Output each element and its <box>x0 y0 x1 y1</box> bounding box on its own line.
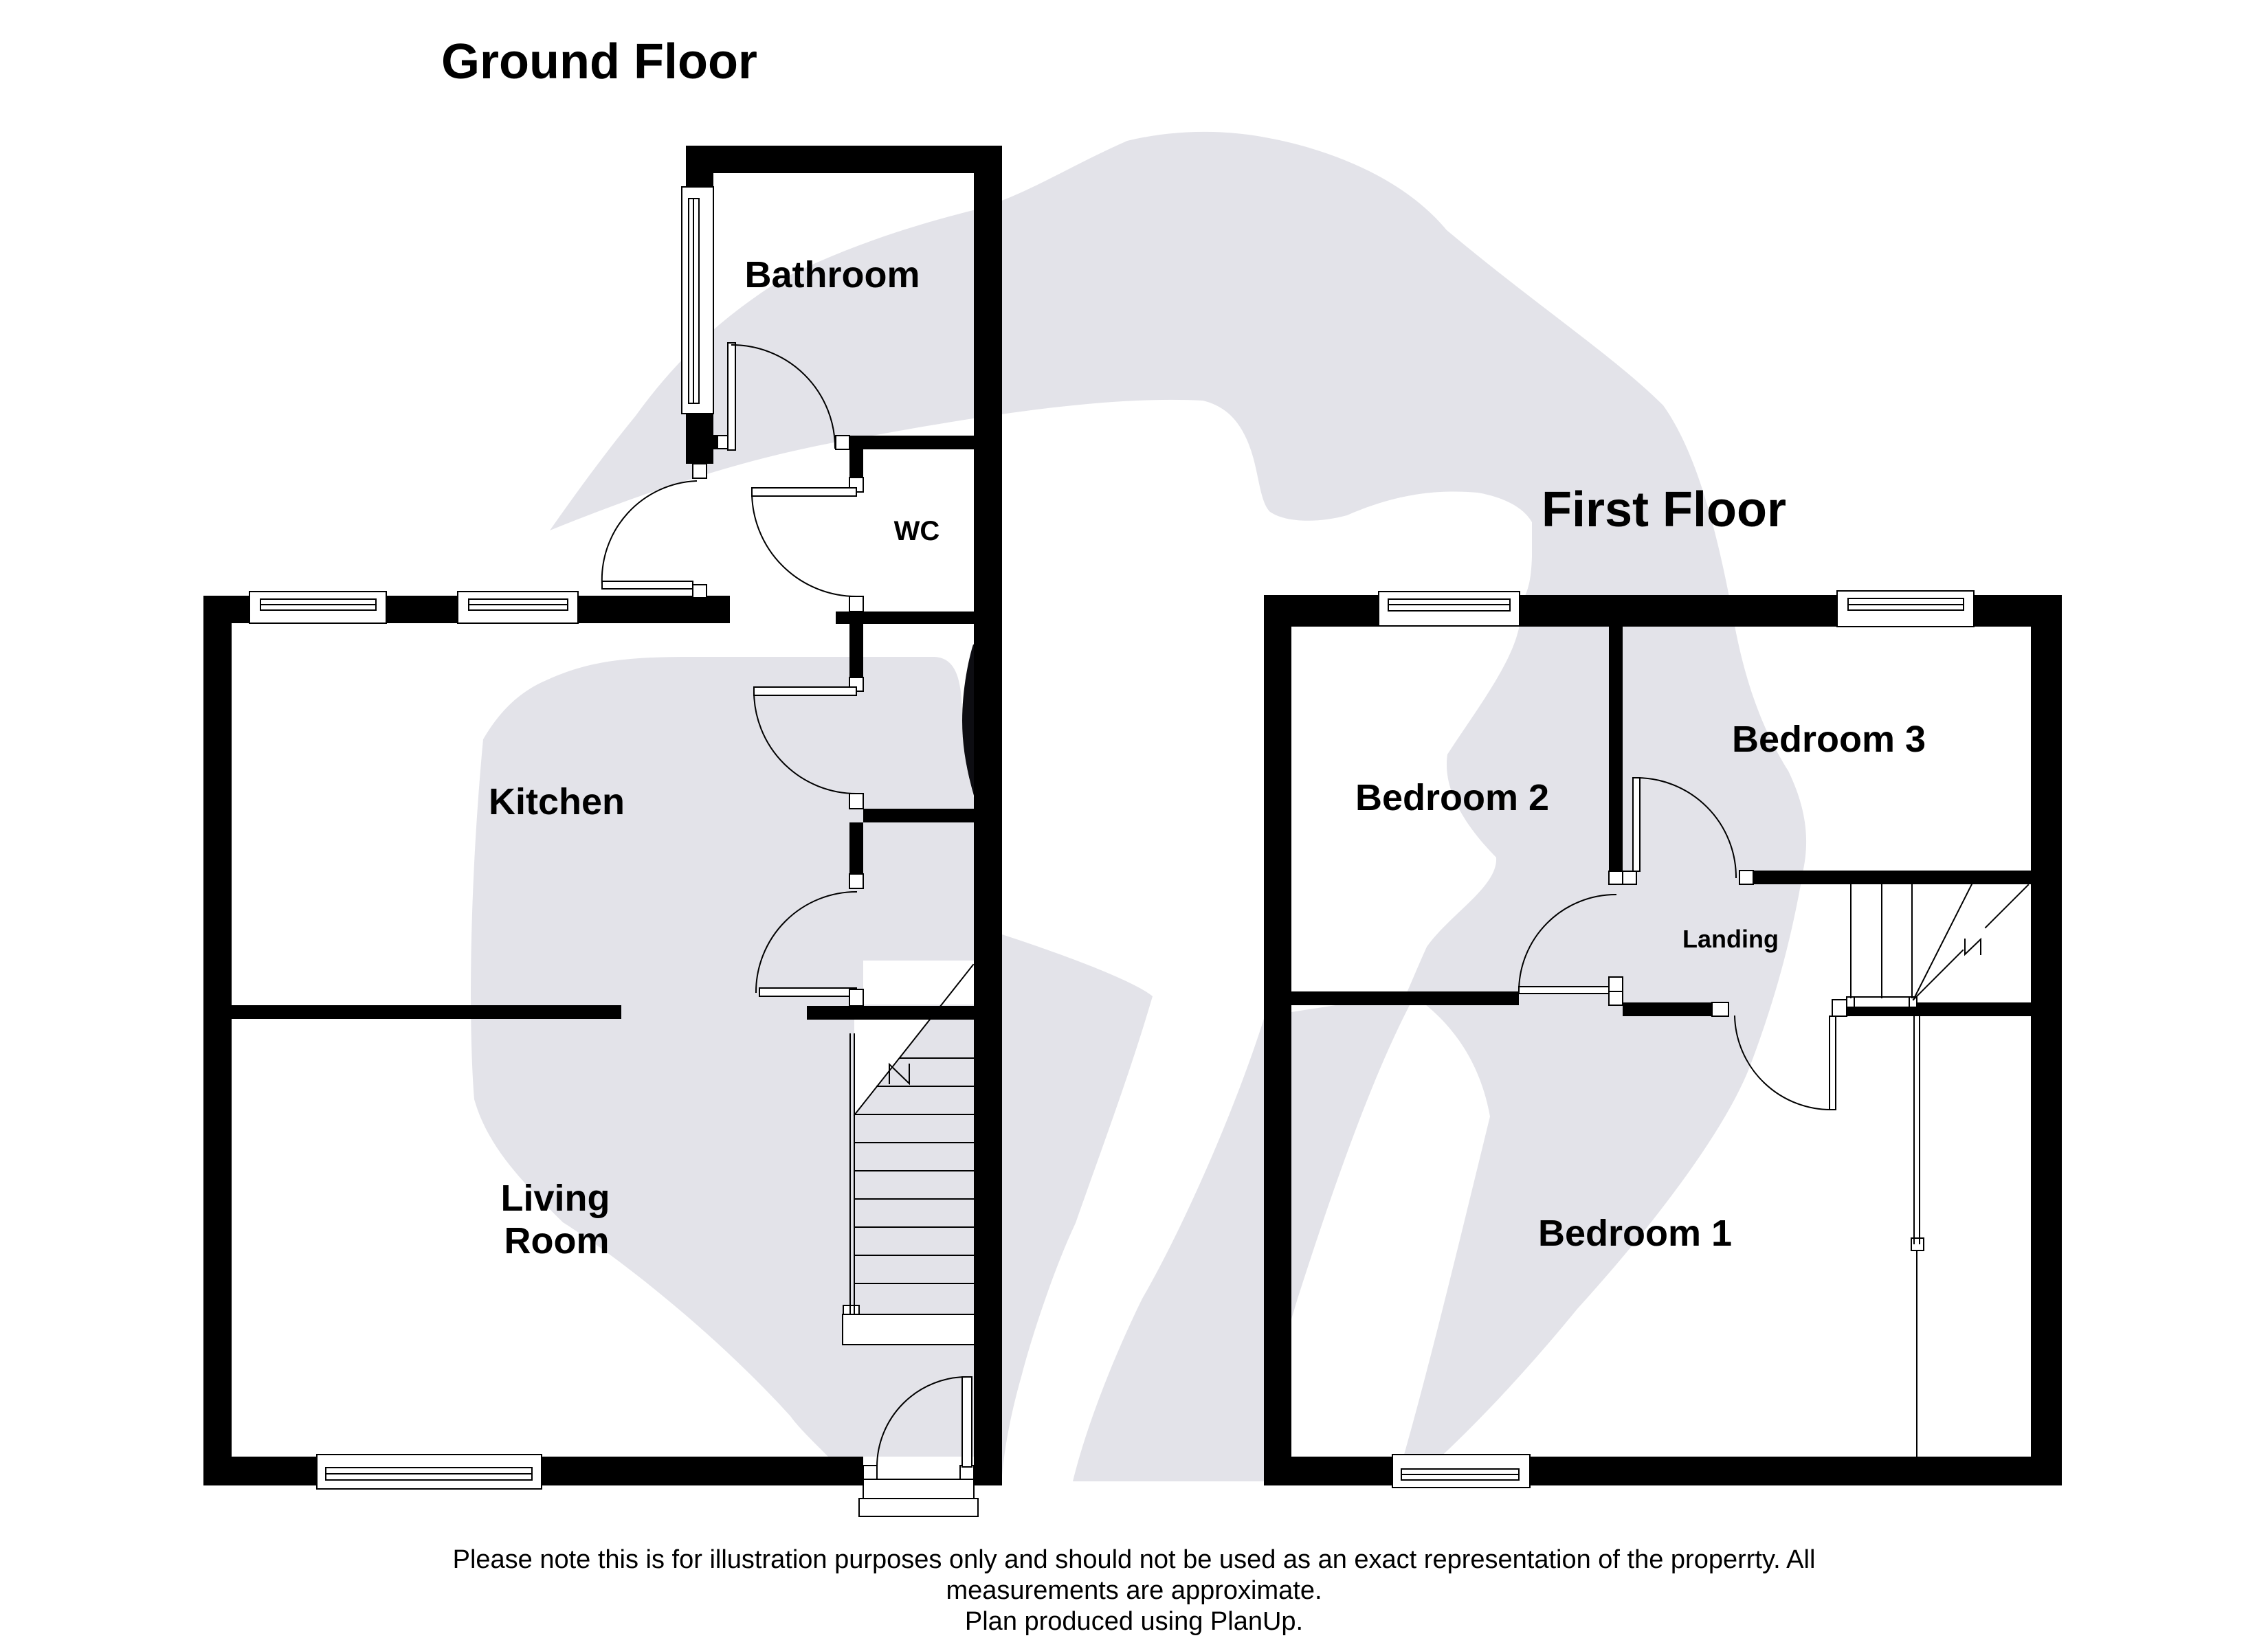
svg-text:Kitchen: Kitchen <box>489 781 625 822</box>
svg-text:Plan produced using PlanUp.: Plan produced using PlanUp. <box>965 1607 1303 1636</box>
svg-text:Living: Living <box>501 1178 610 1219</box>
svg-text:Bedroom 2: Bedroom 2 <box>1355 777 1549 818</box>
svg-text:Bedroom 1: Bedroom 1 <box>1538 1213 1732 1254</box>
svg-text:Bedroom 3: Bedroom 3 <box>1732 719 1926 760</box>
svg-text:Ground Floor: Ground Floor <box>441 34 757 89</box>
svg-text:Landing: Landing <box>1682 925 1779 953</box>
svg-text:Bathroom: Bathroom <box>745 254 920 295</box>
svg-text:First Floor: First Floor <box>1542 482 1786 537</box>
svg-text:Please note this is for illust: Please note this is for illustration pur… <box>453 1545 1816 1574</box>
svg-text:WC: WC <box>894 516 940 546</box>
svg-text:Room: Room <box>504 1220 610 1261</box>
svg-text:measurements are approximate.: measurements are approximate. <box>946 1576 1322 1605</box>
